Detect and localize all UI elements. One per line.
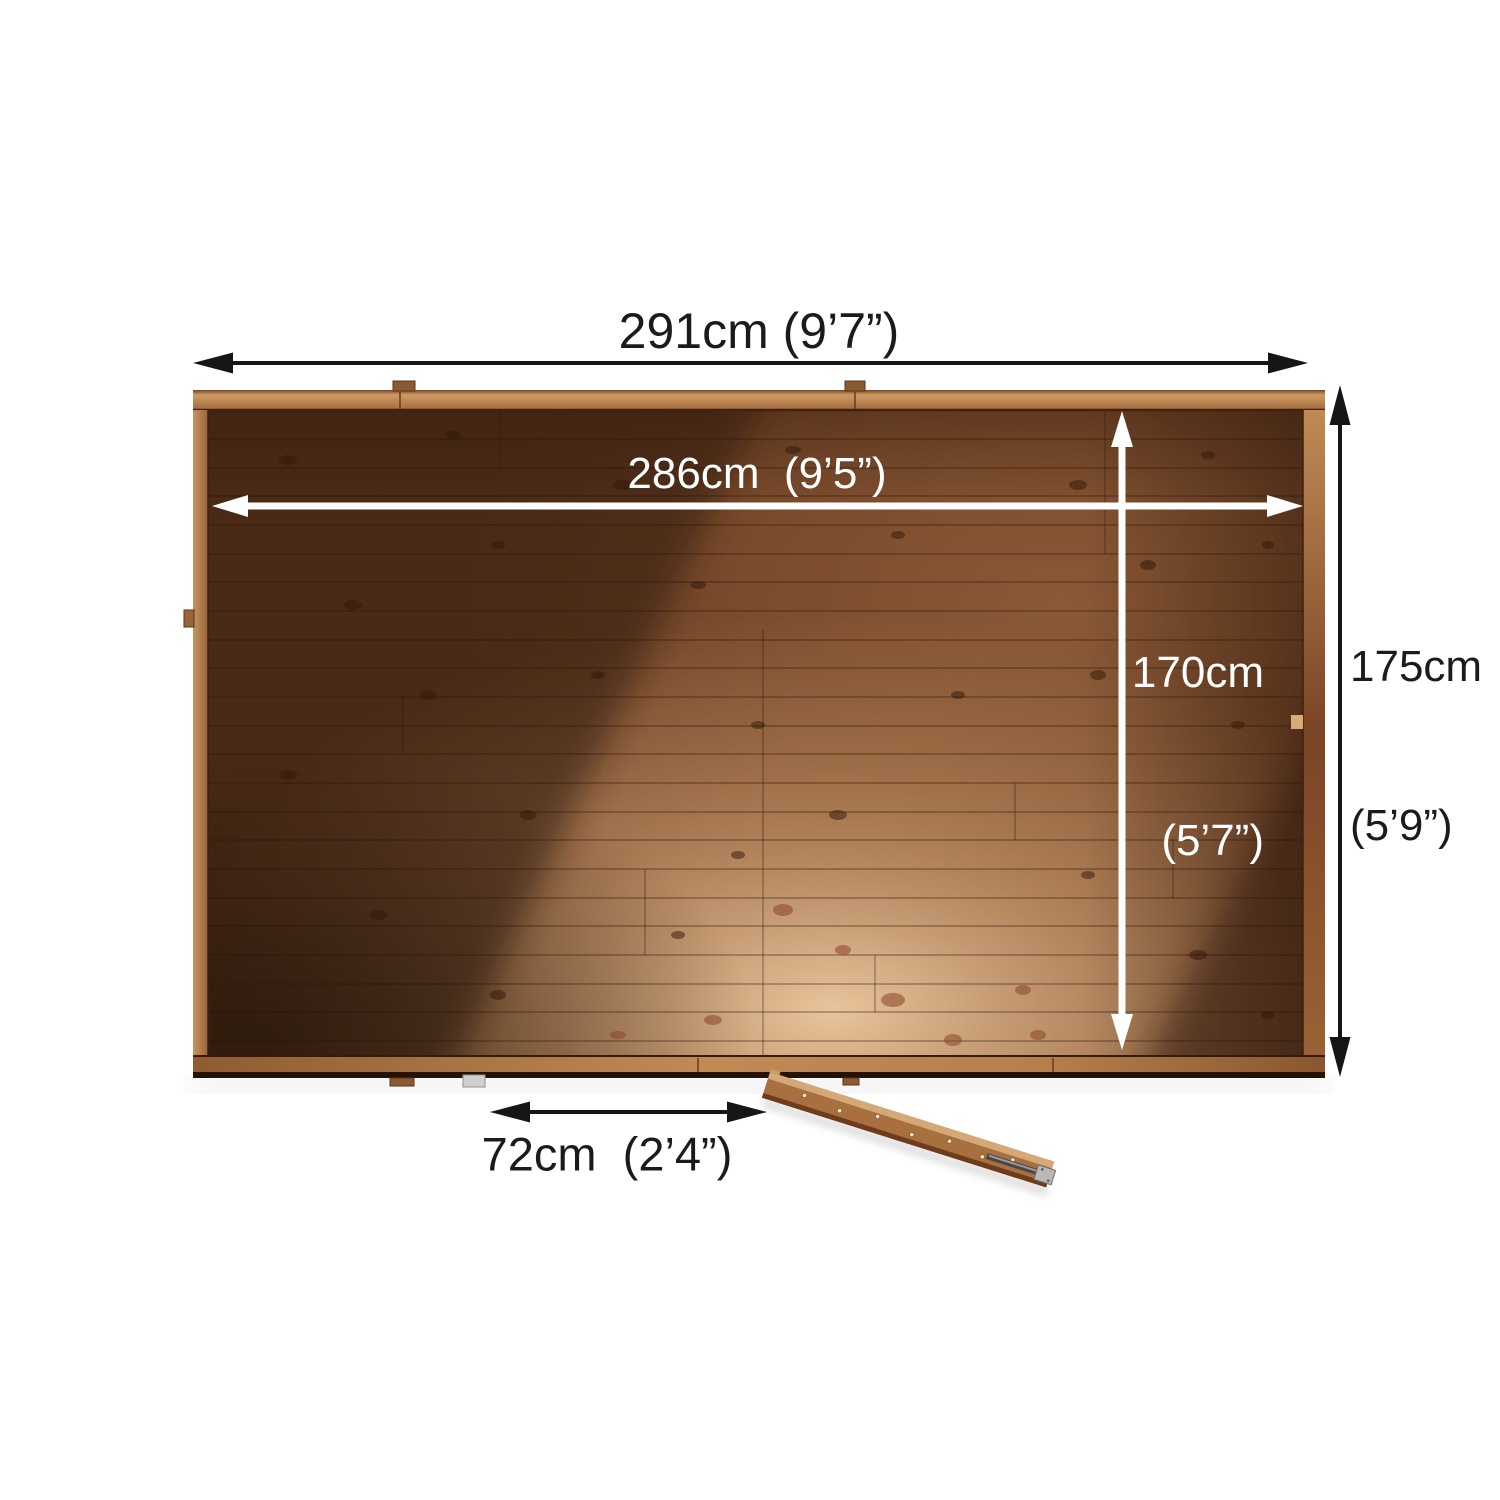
top-tab-right	[845, 381, 865, 391]
arrowhead-right-icon	[1267, 495, 1303, 517]
left-tab	[184, 610, 194, 627]
arrowhead-down-icon	[1330, 1037, 1351, 1077]
loose-plank	[740, 1048, 1090, 1208]
frame-top	[193, 390, 1325, 410]
outer-depth-line1: 175cm	[1350, 640, 1482, 693]
arrowhead-right-icon	[1268, 353, 1308, 374]
door-width-label: 72cm (2’4”)	[482, 1127, 733, 1182]
door-width-arrow	[485, 1096, 777, 1128]
inner-width-label: 286cm (9’5”)	[627, 449, 886, 499]
inner-depth-label: 170cm (5’7”)	[1132, 533, 1264, 981]
outer-depth-label: 175cm (5’9”)	[1350, 534, 1482, 958]
top-tab-left	[393, 381, 415, 391]
arrowhead-down-icon	[1111, 1014, 1133, 1050]
right-inner-tab	[1291, 715, 1303, 729]
arrowhead-left-icon	[490, 1102, 530, 1123]
arrowhead-left-icon	[212, 495, 248, 517]
inner-depth-line1: 170cm	[1132, 645, 1264, 701]
bottom-tab-left	[390, 1078, 414, 1086]
dimension-diagram: 291cm (9’7”) 286cm (9’5”) 175cm (5’9”) 1…	[0, 0, 1500, 1500]
outer-depth-line2: (5’9”)	[1350, 799, 1482, 852]
outer-width-label: 291cm (9’7”)	[619, 302, 900, 360]
inner-depth-line2: (5’7”)	[1132, 813, 1264, 869]
arrowhead-right-icon	[727, 1102, 767, 1123]
arrowhead-up-icon	[1111, 411, 1133, 447]
arrowhead-left-icon	[193, 353, 233, 374]
arrowhead-up-icon	[1330, 385, 1351, 425]
bottom-metal-bracket	[463, 1075, 485, 1087]
